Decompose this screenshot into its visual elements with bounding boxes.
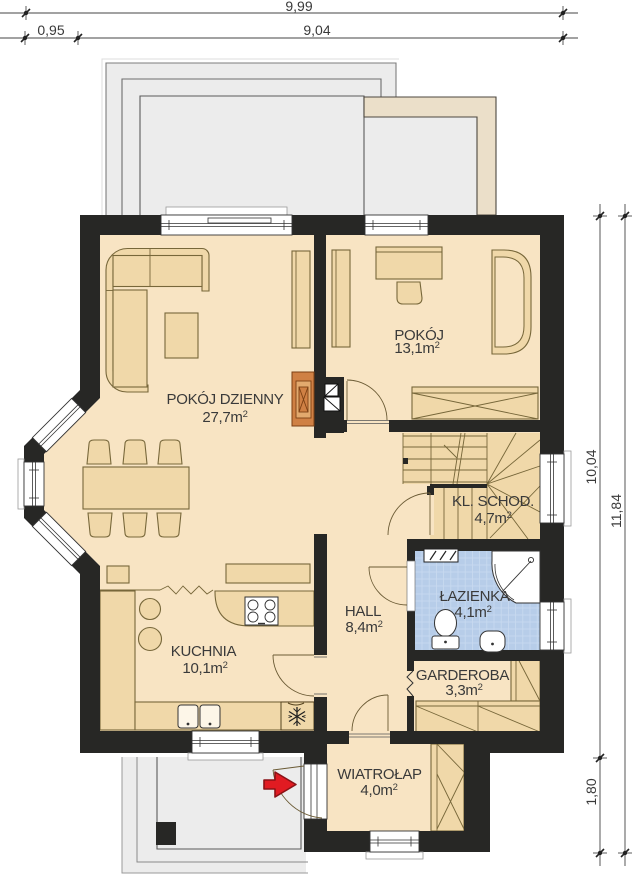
svg-text:WIATROŁAP: WIATROŁAP (337, 766, 422, 783)
svg-text:13,1m2: 13,1m2 (394, 340, 439, 357)
svg-text:9,99: 9,99 (285, 0, 312, 14)
svg-text:10,04: 10,04 (583, 449, 599, 484)
svg-text:0,95: 0,95 (37, 22, 64, 38)
svg-text:10,1m2: 10,1m2 (182, 660, 227, 677)
svg-text:POKÓJ DZIENNY: POKÓJ DZIENNY (167, 391, 284, 408)
svg-text:3,3m2: 3,3m2 (445, 682, 482, 699)
svg-text:KL. SCHOD.: KL. SCHOD. (452, 493, 534, 510)
svg-text:4,7m2: 4,7m2 (474, 510, 511, 527)
svg-text:11,84: 11,84 (608, 494, 624, 528)
svg-text:4,0m2: 4,0m2 (360, 782, 397, 799)
svg-text:1,80: 1,80 (583, 778, 599, 805)
svg-text:27,7m2: 27,7m2 (202, 409, 247, 426)
svg-text:9,04: 9,04 (303, 22, 330, 38)
svg-text:KUCHNIA: KUCHNIA (171, 643, 237, 660)
svg-text:ŁAZIENKA: ŁAZIENKA (439, 588, 509, 605)
svg-text:HALL: HALL (345, 603, 381, 620)
svg-text:8,4m2: 8,4m2 (345, 619, 382, 636)
svg-text:4,1m2: 4,1m2 (454, 604, 491, 621)
